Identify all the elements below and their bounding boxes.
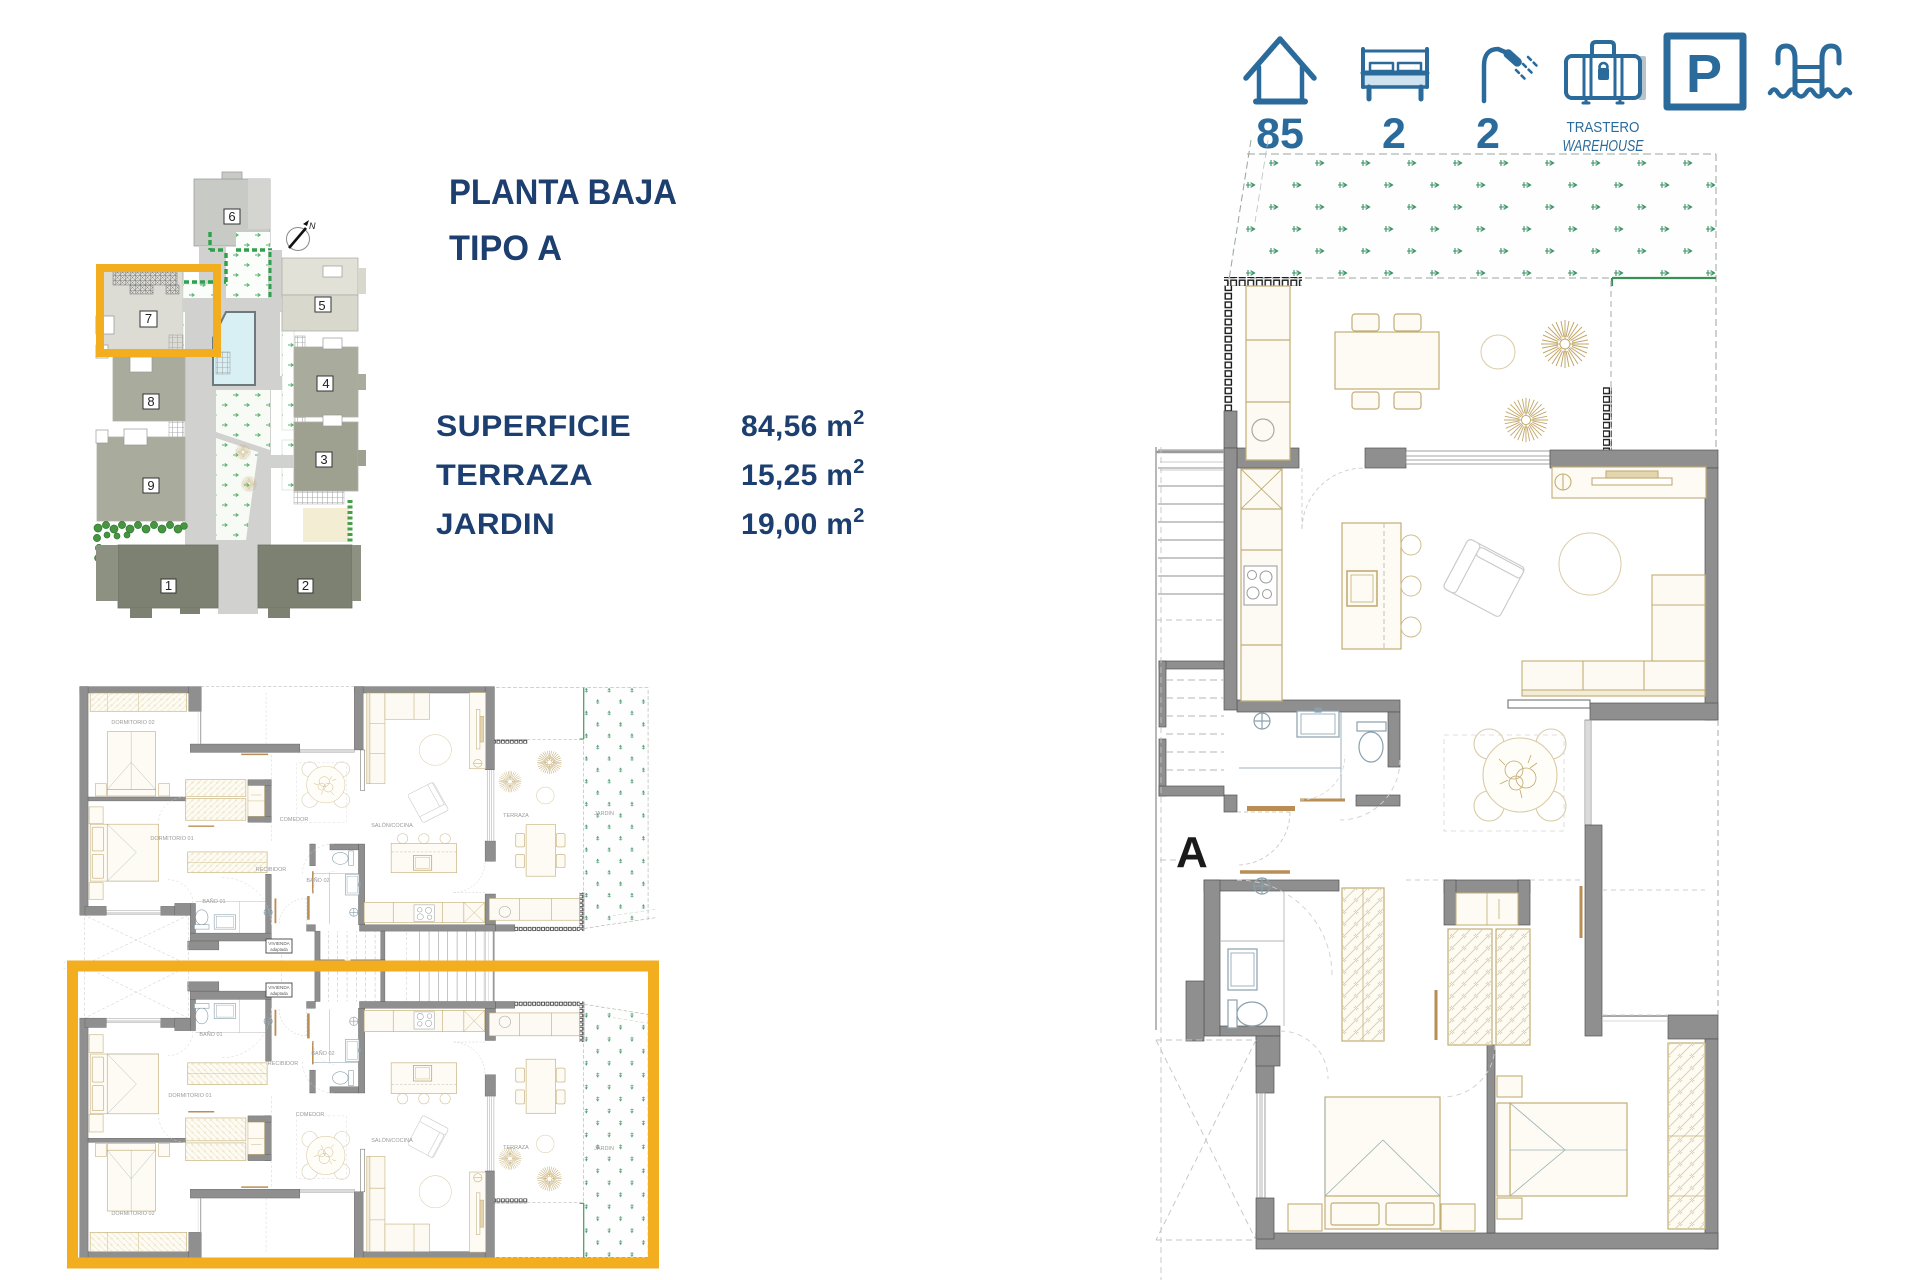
svg-text:15,25 m2: 15,25 m2 (741, 456, 865, 492)
svg-text:adaptada: adaptada (270, 991, 288, 996)
svg-text:TIPO A: TIPO A (449, 229, 562, 268)
svg-text:DORMITORIO 02: DORMITORIO 02 (111, 1211, 154, 1217)
svg-text:WAREHOUSE: WAREHOUSE (1563, 138, 1645, 155)
svg-text:DORMITORIO 02: DORMITORIO 02 (111, 720, 154, 726)
svg-text:19,00 m2: 19,00 m2 (741, 505, 865, 541)
svg-text:SALÓN/COCINA: SALÓN/COCINA (371, 822, 413, 829)
svg-text:TERRAZA: TERRAZA (503, 813, 529, 819)
svg-text:DORMITORIO 01: DORMITORIO 01 (150, 836, 193, 842)
svg-text:5: 5 (318, 298, 325, 313)
svg-text:VIVIENDA: VIVIENDA (268, 985, 290, 990)
svg-text:DORMITORIO 01: DORMITORIO 01 (168, 1093, 211, 1099)
svg-text:PLANTA BAJA: PLANTA BAJA (449, 173, 677, 212)
svg-text:BAÑO 01: BAÑO 01 (199, 1031, 222, 1038)
svg-text:85: 85 (1256, 110, 1304, 158)
svg-text:8: 8 (147, 394, 154, 409)
svg-text:3: 3 (320, 452, 327, 467)
svg-text:RECIBIDOR: RECIBIDOR (268, 1061, 299, 1067)
svg-text:TERRAZA: TERRAZA (503, 1145, 529, 1151)
svg-text:JARDIN: JARDIN (594, 1146, 614, 1152)
svg-text:9: 9 (147, 478, 154, 493)
svg-text:JARDIN: JARDIN (436, 508, 555, 541)
svg-text:JARDIN: JARDIN (594, 811, 614, 817)
svg-text:SALÓN/COCINA: SALÓN/COCINA (371, 1137, 413, 1144)
svg-text:7: 7 (145, 311, 152, 326)
svg-text:4: 4 (322, 376, 329, 391)
svg-text:BAÑO 02: BAÑO 02 (306, 877, 329, 884)
svg-text:TERRAZA: TERRAZA (436, 459, 593, 492)
svg-text:6: 6 (228, 209, 235, 224)
svg-text:BAÑO 02: BAÑO 02 (311, 1050, 334, 1057)
svg-text:COMEDOR: COMEDOR (280, 817, 309, 823)
svg-text:2: 2 (1476, 110, 1500, 158)
svg-text:2: 2 (302, 578, 309, 593)
svg-text:2: 2 (1382, 110, 1406, 158)
svg-text:A: A (1176, 828, 1208, 877)
svg-text:TRASTERO: TRASTERO (1567, 119, 1640, 136)
svg-text:BAÑO 01: BAÑO 01 (202, 898, 225, 905)
svg-text:VIVIENDA: VIVIENDA (268, 941, 290, 946)
svg-text:RECIBIDOR: RECIBIDOR (256, 867, 287, 873)
svg-text:adaptada: adaptada (270, 947, 288, 952)
svg-text:COMEDOR: COMEDOR (296, 1112, 325, 1118)
svg-text:N: N (309, 221, 316, 231)
svg-text:1: 1 (165, 578, 172, 593)
svg-text:P: P (1686, 44, 1722, 104)
svg-text:84,56 m2: 84,56 m2 (741, 407, 865, 443)
svg-text:SUPERFICIE: SUPERFICIE (436, 410, 631, 443)
